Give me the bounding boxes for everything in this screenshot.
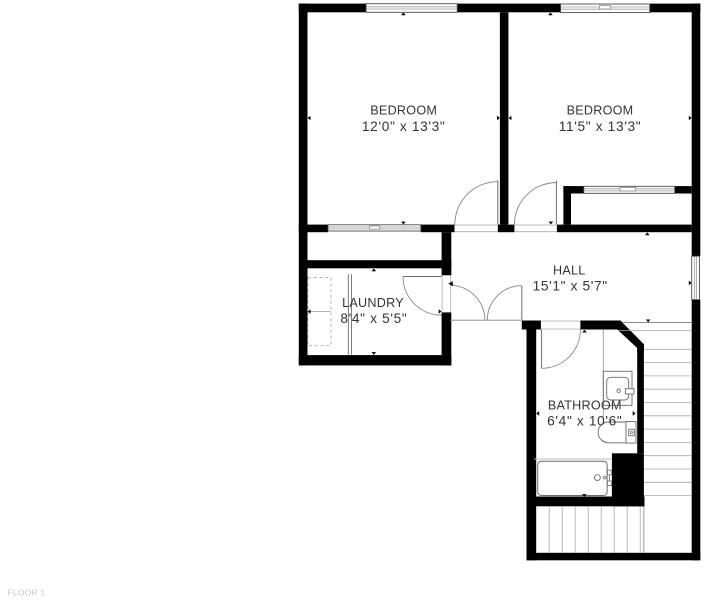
svg-text:FLOOR 1: FLOOR 1 [8,588,46,598]
svg-text:6'4" x 10'6": 6'4" x 10'6" [547,413,622,428]
svg-text:BATHROOM: BATHROOM [548,398,622,412]
svg-text:BEDROOM: BEDROOM [567,104,634,118]
svg-text:BEDROOM: BEDROOM [370,104,437,118]
svg-text:15'1" x 5'7": 15'1" x 5'7" [533,278,608,293]
svg-text:12'0" x 13'3": 12'0" x 13'3" [362,119,446,134]
svg-text:8'4" x 5'5": 8'4" x 5'5" [340,311,407,326]
svg-text:HALL: HALL [553,263,586,277]
svg-text:LAUNDRY: LAUNDRY [342,296,404,310]
svg-text:11'5" x 13'3": 11'5" x 13'3" [559,119,642,134]
